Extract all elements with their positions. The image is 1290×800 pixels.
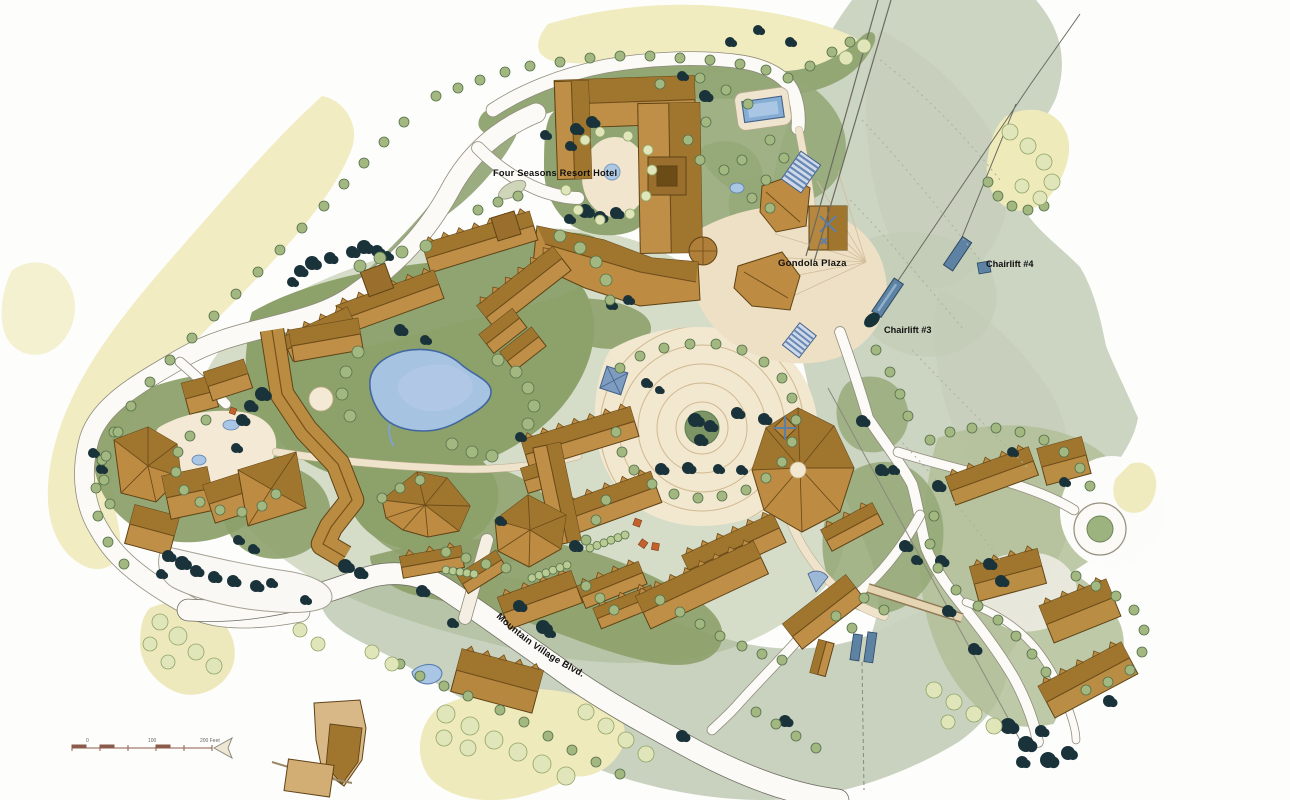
svg-text:0: 0	[86, 738, 89, 744]
svg-text:200 Feet: 200 Feet	[200, 738, 220, 744]
svg-text:100: 100	[148, 738, 157, 744]
svg-text:Four Seasons Resort Hotel: Four Seasons Resort Hotel	[493, 168, 617, 178]
svg-text:Chairlift #3: Chairlift #3	[884, 325, 931, 335]
svg-text:Gondola Plaza: Gondola Plaza	[778, 258, 847, 269]
svg-text:Chairlift #4: Chairlift #4	[986, 259, 1034, 269]
